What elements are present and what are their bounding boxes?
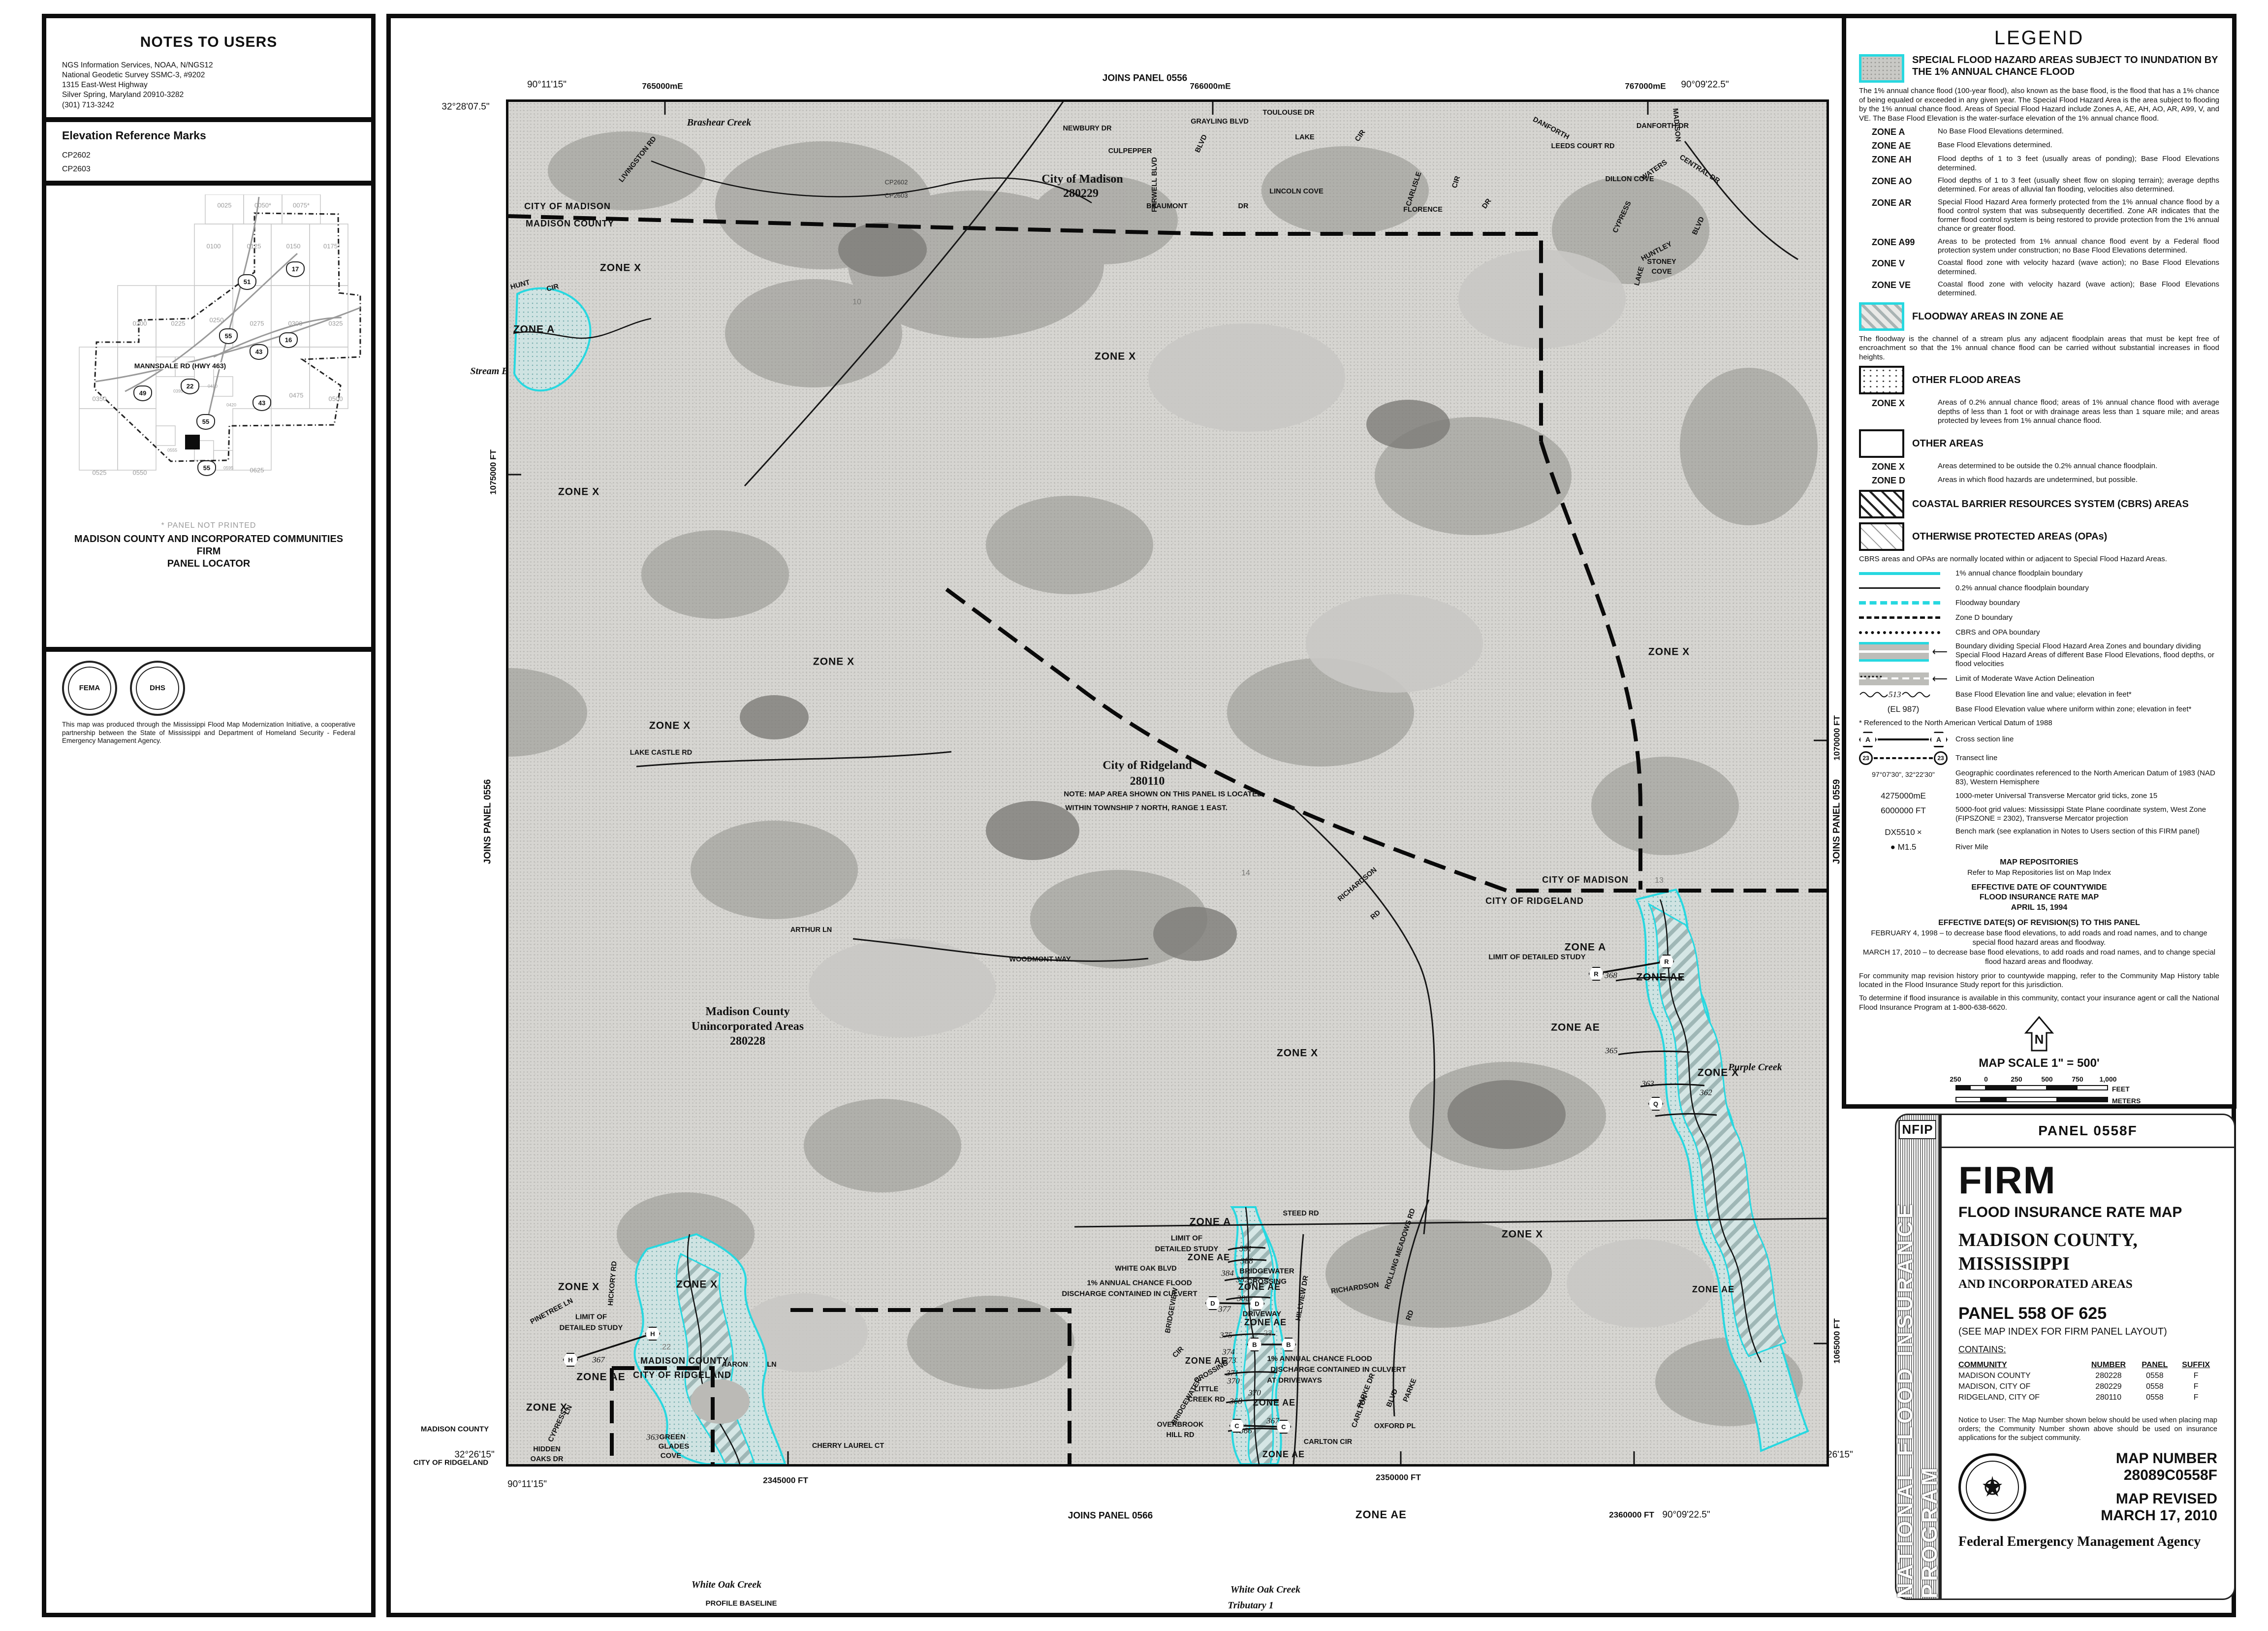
community-rows: MADISON COUNTY 280228 0558 F MADISON, CI… <box>1958 1371 2217 1403</box>
margin-label: JOINS PANEL 0556 <box>1102 74 1187 83</box>
map-label: NEWBURY DR <box>1063 125 1111 132</box>
map-label: ZONE X <box>813 657 854 667</box>
feet-ticks: 25002505007501,000 <box>1955 1075 2123 1083</box>
panel-locator: 00250050*0075*0100012501500175*020002250… <box>62 194 355 640</box>
map-label: CIR <box>546 283 560 293</box>
map-label: LAKE <box>1295 134 1314 141</box>
map-label: ZONE AE <box>1244 1318 1287 1327</box>
map-label: LEEDS COURT RD <box>1551 143 1615 150</box>
map-label: BRIDGEWATER <box>1239 1268 1294 1275</box>
zone-row: ZONE AH Flood depths of 1 to 3 feet (usu… <box>1872 155 2219 173</box>
map-label: STONEY <box>1647 258 1676 266</box>
line-label: 0.2% annual chance floodplain boundary <box>1955 584 2219 593</box>
map-label: WHITE OAK BLVD <box>1115 1265 1176 1273</box>
map-label: City of Madison <box>1041 173 1123 185</box>
margin-label: 90°09'22.5" <box>1662 1510 1710 1520</box>
revision-2: MARCH 17, 2010 – to decrease base flood … <box>1859 948 2219 967</box>
zone-row: ZONE AR Special Flood Hazard Area former… <box>1872 198 2219 234</box>
community-panel: 0558 <box>2135 1371 2174 1381</box>
el-value: (EL 987) <box>1888 704 1920 714</box>
map-label: ZONE A <box>1190 1217 1231 1227</box>
legend-panel: LEGEND SPECIAL FLOOD HAZARD AREAS SUBJEC… <box>1842 14 2236 1109</box>
map-label: BLVD <box>1691 216 1705 236</box>
cbrs-swatch-icon <box>1859 490 1904 518</box>
map-label: ZONE AE <box>1551 1023 1600 1033</box>
map-label: 362 <box>1700 1088 1712 1097</box>
agency-name: Federal Emergency Management Agency <box>1958 1534 2217 1550</box>
svg-text:N: N <box>2035 1032 2044 1047</box>
map-label: OXFORD PL <box>1374 1423 1416 1430</box>
highway-shield-icon: 43 <box>252 395 271 411</box>
map-label: HUNT <box>510 279 531 291</box>
firm-subtitle: FLOOD INSURANCE RATE MAP <box>1958 1204 2217 1221</box>
community-row: MADISON, CITY OF 280229 0558 F <box>1958 1381 2217 1392</box>
map-label: ZONE AE <box>1262 1450 1305 1459</box>
line-label: Bench mark (see explanation in Notes to … <box>1955 827 2219 836</box>
map-label: ZONE X <box>558 487 599 497</box>
erm-title: Elevation Reference Marks <box>62 129 355 142</box>
map-label: H <box>645 1327 661 1341</box>
map-label: 368 <box>1229 1397 1242 1406</box>
bfe-line-icon: 513 <box>1859 689 1948 700</box>
other-areas-heading: OTHER AREAS <box>1912 438 1984 449</box>
map-label: DISCHARGE CONTAINED IN CULVERT <box>1270 1366 1406 1374</box>
margin-label: Tributary 1 <box>1228 1600 1273 1610</box>
community-row: RIDGELAND, CITY OF 280110 0558 F <box>1958 1392 2217 1403</box>
dhs-seal-icon: DHS <box>130 661 185 716</box>
0.2pct-boundary-line-icon <box>1859 583 1948 594</box>
notice-to-user: Notice to User: The Map Number shown bel… <box>1958 1416 2217 1442</box>
map-label: MADISON COUNTY <box>526 219 614 228</box>
margin-label: White Oak Creek <box>692 1580 761 1590</box>
map-history-note: For community map revision history prior… <box>1859 972 2219 990</box>
margin-label: JOINS PANEL 0566 <box>1068 1511 1153 1521</box>
notes-title: NOTES TO USERS <box>62 34 355 51</box>
map-label: STEED RD <box>1283 1210 1319 1217</box>
river-mile-value: ● M1.5 <box>1890 842 1917 852</box>
zone-row: ZONE AO Flood depths of 1 to 3 feet (usu… <box>1872 176 2219 194</box>
zone-description: Special Flood Hazard Area formerly prote… <box>1938 198 2219 234</box>
margin-label: 90°11'15" <box>527 80 567 90</box>
scale-tick-label: 500 <box>2041 1075 2052 1083</box>
map-label: 1% ANNUAL CHANCE FLOOD <box>1087 1279 1192 1287</box>
map-label: BLVD <box>1194 134 1208 154</box>
map-label: CYPRESS <box>547 1409 568 1443</box>
zone-row: ZONE X Areas determined to be outside th… <box>1872 462 2219 472</box>
map-label: 22 <box>662 1343 671 1351</box>
map-label: ZONE A <box>513 324 555 335</box>
sfha-heading: SPECIAL FLOOD HAZARD AREAS SUBJECT TO IN… <box>1912 54 2219 78</box>
map-label: CARLISLE <box>1405 171 1423 207</box>
floodplain-boundary-line-icon <box>1859 568 1948 579</box>
map-label: GREEN <box>659 1434 685 1441</box>
map-label: 280229 <box>1063 188 1099 199</box>
highway-number: 55 <box>203 464 210 472</box>
zone-name: ZONE AO <box>1872 176 1931 194</box>
map-label: RD <box>1405 1310 1416 1322</box>
map-label: 374 <box>1222 1348 1235 1356</box>
line-label: 1% annual chance floodplain boundary <box>1955 569 2219 578</box>
map-label: H <box>563 1353 578 1367</box>
map-label: CULPEPPER <box>1108 148 1152 155</box>
community-suffix: F <box>2174 1371 2217 1381</box>
north-arrow-icon: N <box>1859 1016 2219 1055</box>
scale-tick-label: 150 <box>2051 1105 2063 1109</box>
map-label: COVE <box>661 1452 682 1460</box>
zone-x-shaded-row: ZONE X Areas of 0.2% annual chance flood… <box>1872 398 2219 425</box>
section-divider <box>46 181 371 186</box>
sfha-intro: The 1% annual chance flood (100-year flo… <box>1859 87 2219 123</box>
community-suffix: F <box>2174 1392 2217 1403</box>
community-name: MADISON COUNTY <box>1958 1371 2082 1381</box>
map-label: AARON <box>722 1361 748 1369</box>
map-label: HICKORY RD <box>607 1261 618 1306</box>
map-label: CITY OF MADISON <box>1542 875 1629 884</box>
map-label: LITTLE <box>1194 1386 1218 1393</box>
production-credit: This map was produced through the Missis… <box>62 721 355 746</box>
highway-number: 49 <box>139 389 146 397</box>
title-box: PANEL 0558F FIRM FLOOD INSURANCE RATE MA… <box>1940 1114 2236 1600</box>
margin-label: 1075000 FT <box>489 449 498 495</box>
scale-tick-label: 300 <box>2102 1105 2113 1109</box>
map-repositories-heading: MAP REPOSITORIES <box>1859 858 2219 868</box>
map-label: DRIVEWAY <box>1243 1311 1282 1318</box>
opa-swatch-icon <box>1859 522 1904 551</box>
highway-number: 22 <box>187 383 193 390</box>
zone-row: ZONE A99 Areas to be protected from 1% a… <box>1872 237 2219 256</box>
highway-number: 17 <box>292 265 299 273</box>
zone-description: Areas of 0.2% annual chance flood; areas… <box>1938 398 2219 425</box>
scale-tick-label: 250 <box>2011 1075 2022 1083</box>
margin-label: 767000mE <box>1625 82 1666 91</box>
scale-tick-label: 0 <box>1984 1075 1988 1083</box>
map-number: 28089C0558F <box>2034 1467 2217 1484</box>
margin-label: PROFILE BASELINE <box>705 1600 777 1607</box>
highway-number: 55 <box>225 332 232 340</box>
community-table: COMMUNITY NUMBER PANEL SUFFIX MADISON CO… <box>1958 1360 2217 1403</box>
revision-1: FEBRUARY 4, 1998 – to decrease base floo… <box>1859 928 2219 948</box>
other-flood-areas-swatch-icon <box>1859 366 1904 394</box>
line-label: Floodway boundary <box>1955 599 2219 608</box>
address-line: National Geodetic Survey SSMC-3, #9202 <box>62 70 355 80</box>
benchmark-id: DX5510 <box>1885 828 1915 837</box>
map-label: GLADES <box>659 1443 690 1450</box>
margin-label: JOINS PANEL 0556 <box>483 779 493 864</box>
map-scale-title: MAP SCALE 1" = 500' <box>1859 1056 2219 1070</box>
map-label: ROLLING MEADOWS RD <box>1384 1208 1417 1290</box>
map-label: 14 <box>1241 869 1250 877</box>
map-label: ZONE X <box>1277 1048 1318 1058</box>
zone-description: Areas to be protected from 1% annual cha… <box>1938 237 2219 256</box>
map-label: ZONE X <box>649 721 691 731</box>
suffix-col-header: SUFFIX <box>2174 1360 2217 1371</box>
address-line: (301) 713-3242 <box>62 100 355 110</box>
zone-description: Flood depths of 1 to 3 feet (usually are… <box>1938 155 2219 173</box>
map-label: BLVD <box>1386 1388 1399 1408</box>
margin-label: 90°11'15" <box>507 1480 547 1489</box>
scale-tick-label: 250 <box>1950 1075 1961 1083</box>
map-label: TOULOUSE DR <box>1262 109 1314 117</box>
map-label: ZONE AE <box>1188 1253 1230 1262</box>
map-label: 1% ANNUAL CHANCE FLOOD <box>1267 1355 1372 1363</box>
insurance-note: To determine if flood insurance is avail… <box>1859 994 2219 1012</box>
map-labels: ZONE XZONE XZONE XZONE XZONE XZONE XZONE… <box>508 102 1827 1464</box>
nfip-banner: NFIP NATIONAL FLOOD INSURANCE PROGRAM <box>1895 1114 1940 1600</box>
map-label: RICHARDSON <box>1337 866 1379 903</box>
map-label: Madison County <box>705 1006 789 1018</box>
erm-list: CP2602CP2603 <box>62 151 355 174</box>
map-label: COVE <box>1651 268 1671 276</box>
panel-of-line: PANEL 558 OF 625 <box>1958 1304 2217 1323</box>
margin-label: White Oak Creek <box>1230 1585 1300 1595</box>
cbrs-heading: COASTAL BARRIER RESOURCES SYSTEM (CBRS) … <box>1912 498 2189 510</box>
margin-label: 90°09'22.5" <box>1681 80 1729 90</box>
address-line: NGS Information Services, NOAA, N/NGS12 <box>62 61 355 70</box>
line-label: Base Flood Elevation value where uniform… <box>1955 705 2219 714</box>
map-label: MADISON <box>1671 108 1681 142</box>
map-label: ZONE X <box>1502 1229 1543 1240</box>
map-label: NOTE: MAP AREA SHOWN ON THIS PANEL IS LO… <box>1064 791 1262 798</box>
line-label: Transect line <box>1955 754 2219 763</box>
map-label: Purple Creek <box>1728 1062 1782 1072</box>
geo-coords-sample: 97°07'30", 32°22'30" <box>1859 769 1948 780</box>
panel-header: PANEL 0558F <box>1942 1115 2234 1148</box>
map-label: 370 <box>1248 1389 1261 1397</box>
zone-d-boundary-line-icon <box>1859 612 1948 623</box>
map-label: R <box>1659 955 1674 968</box>
address-line: Silver Spring, Maryland 20910-3282 <box>62 90 355 100</box>
panel-col-header: PANEL <box>2135 1360 2174 1371</box>
meter-ticks: 1500150300 <box>1955 1105 2123 1109</box>
opa-heading: OTHERWISE PROTECTED AREAS (OPAs) <box>1912 531 2107 543</box>
community-panel: 0558 <box>2135 1381 2174 1392</box>
zone-description: Flood depths of 1 to 3 feet (usually she… <box>1938 176 2219 194</box>
margin-label: JOINS PANEL 0559 <box>1832 779 1842 864</box>
panel-not-printed-note: * PANEL NOT PRINTED <box>62 521 355 530</box>
map-label: WITHIN TOWNSHIP 7 NORTH, RANGE 1 EAST. <box>1065 804 1227 812</box>
map-label: CARLTON CIR <box>1304 1439 1353 1446</box>
map-label: 375 <box>1220 1331 1232 1340</box>
map-label: ZONE X <box>1648 647 1690 657</box>
highway-shield-icon: 43 <box>250 344 268 360</box>
margin-label: 2350000 FT <box>1376 1473 1421 1482</box>
community-suffix: F <box>2174 1381 2217 1392</box>
zone-row: ZONE V Coastal flood zone with velocity … <box>1872 258 2219 277</box>
map-label: HIDDEN <box>533 1446 561 1453</box>
margin-label: 2360000 FT <box>1609 1511 1654 1519</box>
map-label: 384 <box>1221 1269 1234 1278</box>
map-label: DR <box>1481 197 1493 210</box>
zone-row: ZONE AE Base Flood Elevations determined… <box>1872 141 2219 151</box>
map-label: 280228 <box>730 1035 765 1047</box>
map-label: MADISON COUNTY <box>640 1356 729 1365</box>
map-label: ZONE A <box>1565 942 1606 953</box>
line-label: 1000-meter Universal Transverse Mercator… <box>1955 792 2219 800</box>
highway-number: 51 <box>244 278 251 286</box>
spc-value: 6000000 FT <box>1881 806 1926 816</box>
map-label: HILLVIEW DR <box>1295 1275 1310 1321</box>
community-number: 280229 <box>2082 1381 2135 1392</box>
cross-section-letter: A <box>1859 732 1877 747</box>
line-label: Cross section line <box>1955 735 2219 744</box>
sfha-zone-list: ZONE A No Base Flood Elevations determin… <box>1859 127 2219 298</box>
line-label: CBRS and OPA boundary <box>1955 628 2219 637</box>
bfe-value: 513 <box>1889 690 1901 700</box>
margin-label: 765000mE <box>642 82 683 91</box>
zone-name: ZONE VE <box>1872 280 1931 298</box>
fema-seal-icon: FEMA <box>62 661 117 716</box>
map-label: BEAUMONT <box>1146 203 1188 210</box>
cross-section-letter: A <box>1930 732 1948 747</box>
margin-label: MADISON COUNTY <box>421 1426 489 1433</box>
cbrs-opa-boundary-line-icon <box>1859 627 1948 638</box>
locator-shields: 51175543162249435555 <box>66 194 361 514</box>
highway-shield-icon: 16 <box>279 332 298 348</box>
map-label: B <box>1281 1338 1296 1351</box>
notes-panel: NOTES TO USERS NGS Information Services,… <box>42 14 376 1617</box>
highway-shield-icon: 22 <box>181 379 199 394</box>
map-label: 363 <box>1641 1080 1654 1088</box>
map-label: CROSSING <box>1247 1278 1287 1285</box>
map-number-label: MAP NUMBER <box>2034 1450 2217 1467</box>
map-label: 367 <box>592 1356 605 1364</box>
cross-section-icon: A A <box>1859 732 1948 747</box>
map-label: ZONE X <box>1095 352 1136 362</box>
zone-name: ZONE D <box>1872 476 1931 486</box>
map-label: Brashear Creek <box>687 118 752 128</box>
map-label: ZONE X <box>600 263 641 273</box>
map-label: GRAYLING BLVD <box>1191 118 1249 126</box>
map-label: ZONE AE <box>1636 972 1685 983</box>
zone-name: ZONE A99 <box>1872 237 1931 256</box>
effective-date: APRIL 15, 1994 <box>1859 903 2219 913</box>
map-label: LN <box>767 1361 776 1369</box>
zone-name: ZONE X <box>1872 398 1931 425</box>
benchmark-sample: DX5510× <box>1859 827 1948 838</box>
map-label: CHERRY LAUREL CT <box>812 1442 884 1450</box>
map-label: WOODMONT WAY <box>1009 956 1071 963</box>
map-label: LAKE CASTLE RD <box>630 749 692 757</box>
zone-name: ZONE V <box>1872 258 1931 277</box>
map-label: FLORENCE <box>1403 206 1443 214</box>
see-index-note: (SEE MAP INDEX FOR FIRM PANEL LAYOUT) <box>1958 1326 2217 1338</box>
map-label: 370 <box>1227 1377 1240 1385</box>
map-area: ZONE XZONE XZONE XZONE XZONE XZONE XZONE… <box>506 99 1829 1467</box>
map-label: OAKS DR <box>531 1456 564 1463</box>
highway-number: 55 <box>202 418 209 425</box>
highway-shield-icon: 55 <box>197 460 216 476</box>
erm-mark: CP2602 <box>62 151 355 160</box>
line-label: Boundary dividing Special Flood Hazard A… <box>1955 642 2219 669</box>
highway-shield-icon: 49 <box>133 385 152 401</box>
map-repositories-text: Refer to Map Repositories list on Map In… <box>1859 868 2219 878</box>
map-label: 380 <box>1237 1294 1250 1303</box>
geo-value: 97°07'30", 32°22'30" <box>1872 770 1935 778</box>
mannsdale-road-label: MANNSDALE RD (HWY 463) <box>133 362 227 369</box>
address-line: 1315 East-West Highway <box>62 80 355 90</box>
map-label: ZONE X <box>558 1282 599 1292</box>
state-plane-sample: 6000000 FT <box>1859 805 1948 816</box>
number-col-header: NUMBER <box>2082 1360 2135 1371</box>
map-label: Unincorporated Areas <box>692 1021 804 1032</box>
zone-description: Coastal flood zone with velocity hazard … <box>1938 280 2219 298</box>
map-label: ZONE AE <box>1692 1285 1734 1294</box>
zone-name: ZONE AE <box>1872 141 1931 151</box>
map-label: R <box>1589 967 1604 981</box>
effective-date-heading-1: EFFECTIVE DATE OF COUNTYWIDE <box>1859 883 2219 893</box>
community-name: RIDGELAND, CITY OF <box>1958 1392 2082 1403</box>
map-label: City of Ridgeland <box>1102 760 1192 771</box>
highway-number: 43 <box>255 348 262 355</box>
highway-number: 43 <box>258 399 265 407</box>
utm-value: 4275000mE <box>1881 791 1926 801</box>
map-label: AT DRIVEWAYS <box>1267 1377 1322 1384</box>
highway-shield-icon: 51 <box>238 274 256 290</box>
zone-row: ZONE VE Coastal flood zone with velocity… <box>1872 280 2219 298</box>
meters-unit: METERS <box>2112 1097 2141 1105</box>
map-label: Q <box>1648 1097 1664 1111</box>
sfha-swatch-icon <box>1859 54 1904 83</box>
map-label: DETAILED STUDY <box>1155 1246 1219 1253</box>
margin-label: ZONE AE <box>1355 1509 1407 1520</box>
nfip-logo: NFIP <box>1899 1120 1936 1139</box>
map-label: CREEK RD <box>1188 1396 1225 1404</box>
floodway-boundary-line-icon <box>1859 598 1948 608</box>
zone-name: ZONE X <box>1872 462 1931 472</box>
map-revised-date: MARCH 17, 2010 <box>2034 1507 2217 1524</box>
map-label: DETAILED STUDY <box>560 1324 623 1332</box>
scale-tick-label: 750 <box>2072 1075 2083 1083</box>
map-label: LINCOLN COVE <box>1269 188 1323 195</box>
ngs-address: NGS Information Services, NOAA, N/NGS12N… <box>62 61 355 110</box>
cbrs-note: CBRS areas and OPAs are normally located… <box>1859 555 2219 564</box>
feet-unit: FEET <box>2112 1085 2130 1093</box>
locator-title-2: PANEL LOCATOR <box>62 558 355 570</box>
zone-description: No Base Flood Elevations determined. <box>1938 127 2219 137</box>
community-row: MADISON COUNTY 280228 0558 F <box>1958 1371 2217 1381</box>
map-label: 23 <box>1263 1330 1272 1338</box>
zone-row: ZONE A No Base Flood Elevations determin… <box>1872 127 2219 137</box>
line-label: Limit of Moderate Wave Action Delineatio… <box>1955 674 2219 683</box>
map-revised-label: MAP REVISED <box>2034 1491 2217 1507</box>
limwa-bar-icon: ⟵ <box>1859 672 1948 685</box>
line-label: Zone D boundary <box>1955 613 2219 622</box>
map-label: CP2603 <box>885 192 908 199</box>
margin-label: CITY OF RIDGELAND <box>413 1459 488 1467</box>
map-label: 368 <box>1605 971 1617 980</box>
map-label: PARKE <box>1402 1377 1418 1403</box>
map-label: DANFORTH <box>1532 116 1571 141</box>
map-label: OVERBROOK <box>1157 1421 1203 1429</box>
map-label: LIMIT OF DETAILED STUDY <box>1488 954 1585 961</box>
zone-description: Areas in which flood hazards are undeter… <box>1938 476 2219 486</box>
revisions-heading: EFFECTIVE DATE(S) OF REVISION(S) TO THIS… <box>1859 918 2219 928</box>
margin-label: 766000mE <box>1190 82 1230 91</box>
utm-grid-sample: 4275000mE <box>1859 791 1948 801</box>
map-label: DILLON COVE <box>1605 176 1654 183</box>
scale-tick-label: 1,000 <box>2099 1075 2116 1083</box>
map-label: 382 <box>1236 1276 1249 1284</box>
section-divider <box>46 647 371 652</box>
map-label: PINETREE LN <box>529 1297 574 1326</box>
community-number: 280110 <box>2082 1392 2135 1403</box>
map-label: 367 <box>1266 1417 1279 1425</box>
state-name: MISSISSIPPI <box>1958 1252 2217 1276</box>
map-label: ZONE AE <box>576 1372 626 1382</box>
line-label: Base Flood Elevation line and value; ele… <box>1955 690 2219 699</box>
map-label: LIMIT OF <box>1171 1235 1202 1242</box>
map-label: CIR <box>1451 175 1462 189</box>
